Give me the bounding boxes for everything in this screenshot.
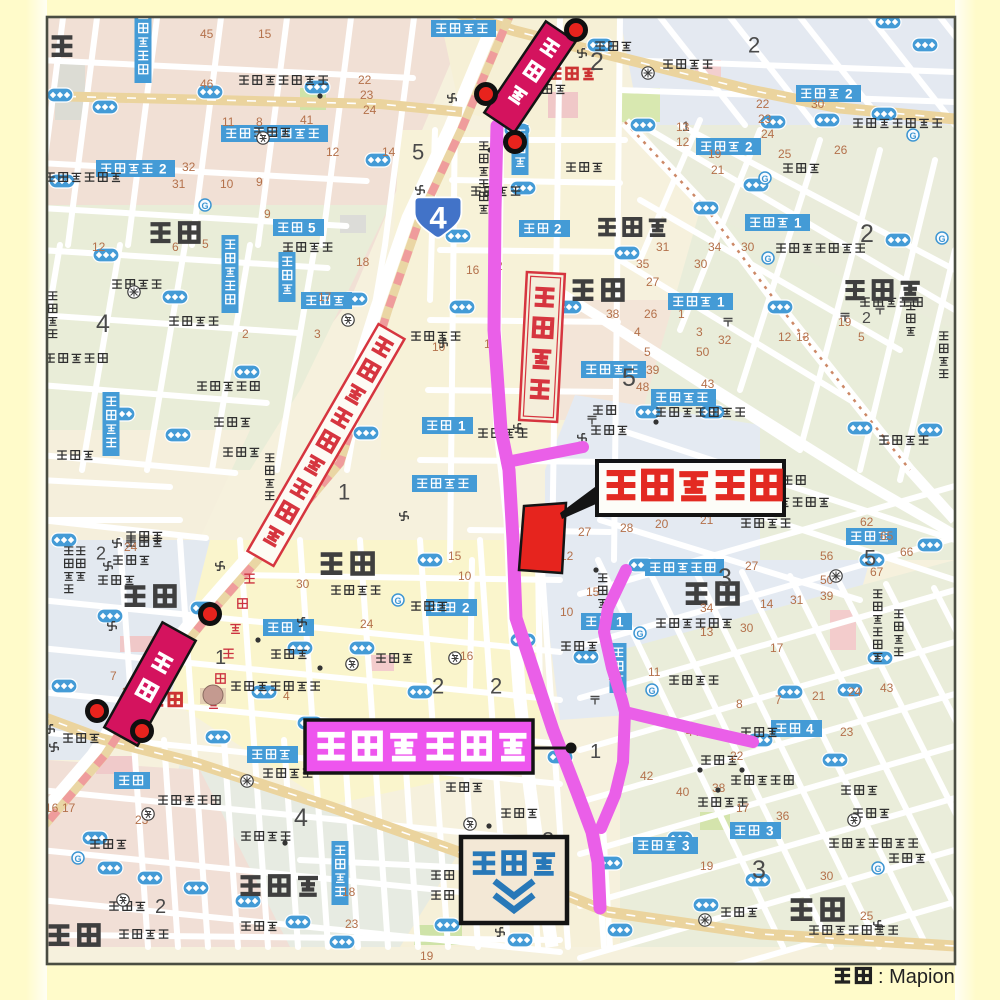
svg-text:13: 13 bbox=[796, 330, 810, 344]
svg-text:1: 1 bbox=[215, 647, 226, 669]
svg-text:31: 31 bbox=[790, 593, 804, 607]
svg-text:19: 19 bbox=[420, 949, 434, 963]
svg-text:9: 9 bbox=[256, 175, 263, 189]
svg-text:22: 22 bbox=[730, 749, 744, 763]
svg-text:24: 24 bbox=[363, 103, 377, 117]
svg-text:5: 5 bbox=[202, 237, 209, 251]
svg-text:20: 20 bbox=[655, 517, 669, 531]
svg-text:16: 16 bbox=[466, 263, 480, 277]
svg-text:40: 40 bbox=[676, 785, 690, 799]
svg-text:4: 4 bbox=[634, 325, 641, 339]
svg-text:31: 31 bbox=[172, 177, 186, 191]
svg-text:3: 3 bbox=[718, 564, 732, 592]
svg-text:2: 2 bbox=[860, 220, 874, 248]
svg-text:34: 34 bbox=[700, 601, 714, 615]
svg-text:6: 6 bbox=[172, 240, 179, 254]
svg-text:4: 4 bbox=[96, 310, 110, 338]
svg-text:4: 4 bbox=[294, 804, 308, 832]
svg-text:15: 15 bbox=[586, 585, 600, 599]
svg-text:1: 1 bbox=[678, 307, 685, 321]
svg-text:11: 11 bbox=[222, 115, 235, 129]
svg-text:62: 62 bbox=[860, 515, 874, 529]
svg-text:24: 24 bbox=[761, 127, 775, 141]
svg-text:5: 5 bbox=[644, 345, 651, 359]
svg-text:30: 30 bbox=[694, 257, 708, 271]
svg-text:2: 2 bbox=[590, 48, 604, 76]
svg-text:13: 13 bbox=[676, 120, 690, 134]
svg-text:12: 12 bbox=[326, 145, 340, 159]
svg-text:2: 2 bbox=[748, 33, 760, 58]
svg-text:45: 45 bbox=[200, 27, 214, 41]
svg-text:67: 67 bbox=[870, 565, 884, 579]
svg-text:28: 28 bbox=[620, 521, 634, 535]
svg-text:22: 22 bbox=[358, 73, 372, 87]
svg-text:66: 66 bbox=[900, 545, 914, 559]
svg-text:23: 23 bbox=[840, 725, 854, 739]
svg-text:2: 2 bbox=[432, 674, 444, 699]
svg-text:46: 46 bbox=[200, 77, 214, 91]
svg-text:30: 30 bbox=[296, 577, 310, 591]
svg-text:24: 24 bbox=[124, 540, 138, 554]
svg-text:36: 36 bbox=[776, 809, 790, 823]
svg-text:19: 19 bbox=[700, 859, 714, 873]
svg-text:8: 8 bbox=[736, 697, 743, 711]
svg-text:4: 4 bbox=[429, 201, 447, 236]
svg-text:27: 27 bbox=[745, 559, 759, 573]
svg-text:3: 3 bbox=[682, 839, 690, 854]
svg-text:17: 17 bbox=[770, 641, 784, 655]
svg-text:1: 1 bbox=[794, 216, 802, 231]
svg-text:5: 5 bbox=[858, 330, 865, 344]
svg-text:5: 5 bbox=[308, 221, 316, 236]
svg-text:17: 17 bbox=[736, 801, 750, 815]
svg-text:34: 34 bbox=[708, 240, 722, 254]
svg-text:30: 30 bbox=[740, 621, 754, 635]
svg-text:17: 17 bbox=[62, 801, 76, 815]
svg-text:35: 35 bbox=[636, 257, 650, 271]
svg-text:2: 2 bbox=[490, 674, 502, 699]
svg-text:43: 43 bbox=[701, 377, 715, 391]
svg-text:39: 39 bbox=[646, 363, 660, 377]
svg-text:15: 15 bbox=[448, 549, 462, 563]
svg-text:30: 30 bbox=[820, 869, 834, 883]
svg-text:56: 56 bbox=[820, 549, 834, 563]
svg-text:24: 24 bbox=[360, 617, 374, 631]
svg-text:3: 3 bbox=[696, 325, 703, 339]
svg-text:41: 41 bbox=[300, 113, 314, 127]
svg-text:43: 43 bbox=[880, 681, 894, 695]
svg-text:4: 4 bbox=[806, 722, 814, 737]
svg-text:3: 3 bbox=[752, 856, 766, 884]
svg-text:5: 5 bbox=[412, 140, 424, 165]
svg-text:26: 26 bbox=[644, 307, 658, 321]
svg-text:18: 18 bbox=[356, 255, 370, 269]
svg-text:13: 13 bbox=[700, 625, 714, 639]
svg-text:2: 2 bbox=[862, 310, 871, 327]
svg-text:26: 26 bbox=[834, 143, 848, 157]
svg-text:32: 32 bbox=[718, 333, 732, 347]
svg-text:27: 27 bbox=[646, 275, 660, 289]
svg-text:16: 16 bbox=[460, 649, 474, 663]
svg-text:12: 12 bbox=[676, 135, 690, 149]
svg-text:4: 4 bbox=[283, 689, 290, 703]
svg-text:2: 2 bbox=[845, 87, 853, 102]
svg-text:11: 11 bbox=[648, 665, 661, 679]
svg-text:5: 5 bbox=[622, 364, 636, 392]
svg-text:30: 30 bbox=[741, 240, 755, 254]
svg-text:24: 24 bbox=[848, 685, 862, 699]
svg-text:50: 50 bbox=[696, 345, 710, 359]
svg-text:38: 38 bbox=[606, 307, 620, 321]
svg-text:1: 1 bbox=[616, 615, 624, 630]
svg-text:23: 23 bbox=[345, 917, 359, 931]
svg-text:18: 18 bbox=[342, 885, 356, 899]
svg-text:30: 30 bbox=[811, 97, 825, 111]
svg-text:: Mapion: : Mapion bbox=[878, 966, 955, 988]
svg-text:2: 2 bbox=[159, 162, 167, 177]
svg-text:9: 9 bbox=[264, 207, 271, 221]
svg-text:42: 42 bbox=[640, 769, 654, 783]
svg-text:21: 21 bbox=[711, 163, 725, 177]
svg-text:22: 22 bbox=[756, 97, 770, 111]
svg-text:3: 3 bbox=[766, 824, 774, 839]
svg-text:12: 12 bbox=[92, 240, 106, 254]
svg-text:1: 1 bbox=[717, 295, 725, 310]
svg-text:1: 1 bbox=[338, 480, 350, 505]
svg-text:25: 25 bbox=[860, 909, 874, 923]
svg-text:1: 1 bbox=[590, 741, 601, 763]
svg-text:15: 15 bbox=[258, 27, 272, 41]
svg-text:14: 14 bbox=[382, 145, 396, 159]
svg-text:2: 2 bbox=[96, 543, 106, 563]
svg-text:2: 2 bbox=[462, 601, 470, 616]
svg-text:31: 31 bbox=[656, 240, 670, 254]
svg-text:21: 21 bbox=[812, 689, 826, 703]
svg-text:65: 65 bbox=[880, 529, 894, 543]
svg-text:39: 39 bbox=[820, 589, 834, 603]
svg-text:10: 10 bbox=[458, 569, 472, 583]
svg-text:7: 7 bbox=[775, 693, 782, 707]
svg-text:23: 23 bbox=[360, 88, 374, 102]
svg-text:2: 2 bbox=[745, 140, 753, 155]
svg-text:12: 12 bbox=[778, 330, 792, 344]
svg-text:2: 2 bbox=[554, 222, 562, 237]
svg-text:17: 17 bbox=[318, 290, 332, 304]
svg-text:48: 48 bbox=[636, 380, 650, 394]
svg-text:2: 2 bbox=[155, 896, 166, 918]
svg-text:3: 3 bbox=[314, 327, 321, 341]
svg-text:2: 2 bbox=[242, 327, 249, 341]
svg-text:27: 27 bbox=[578, 525, 592, 539]
svg-text:1: 1 bbox=[458, 419, 466, 434]
svg-text:23: 23 bbox=[758, 112, 772, 126]
svg-text:32: 32 bbox=[182, 160, 196, 174]
svg-text:10: 10 bbox=[220, 177, 234, 191]
svg-text:25: 25 bbox=[778, 147, 792, 161]
svg-text:19: 19 bbox=[708, 147, 722, 161]
svg-text:8: 8 bbox=[256, 115, 263, 129]
svg-text:7: 7 bbox=[110, 669, 117, 683]
svg-text:14: 14 bbox=[760, 597, 774, 611]
svg-text:10: 10 bbox=[560, 605, 574, 619]
